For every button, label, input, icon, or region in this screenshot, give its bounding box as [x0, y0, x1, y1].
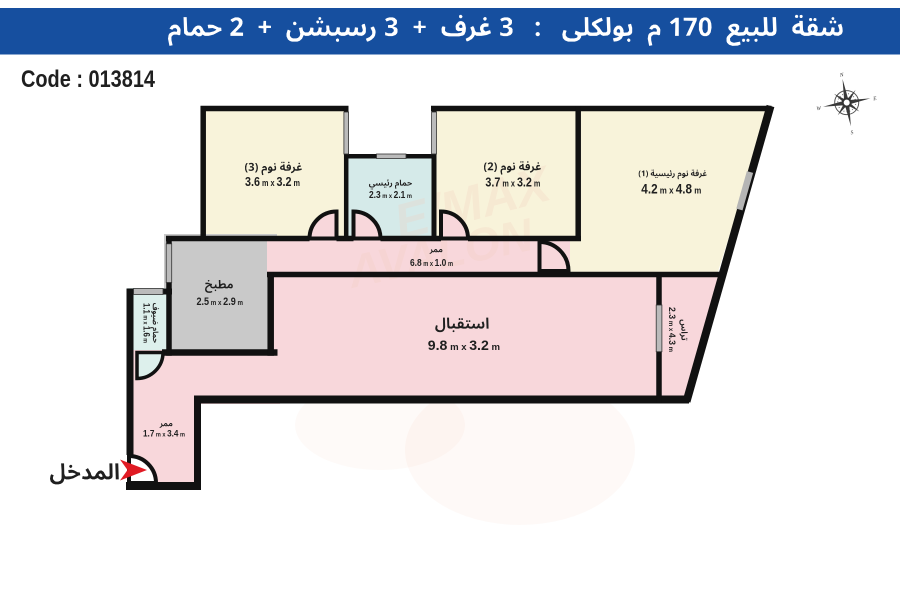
- svg-text:2.5 m x 2.9 m: 2.5 m x 2.9 m: [197, 296, 244, 308]
- svg-text:Code : 013814: Code : 013814: [21, 66, 156, 93]
